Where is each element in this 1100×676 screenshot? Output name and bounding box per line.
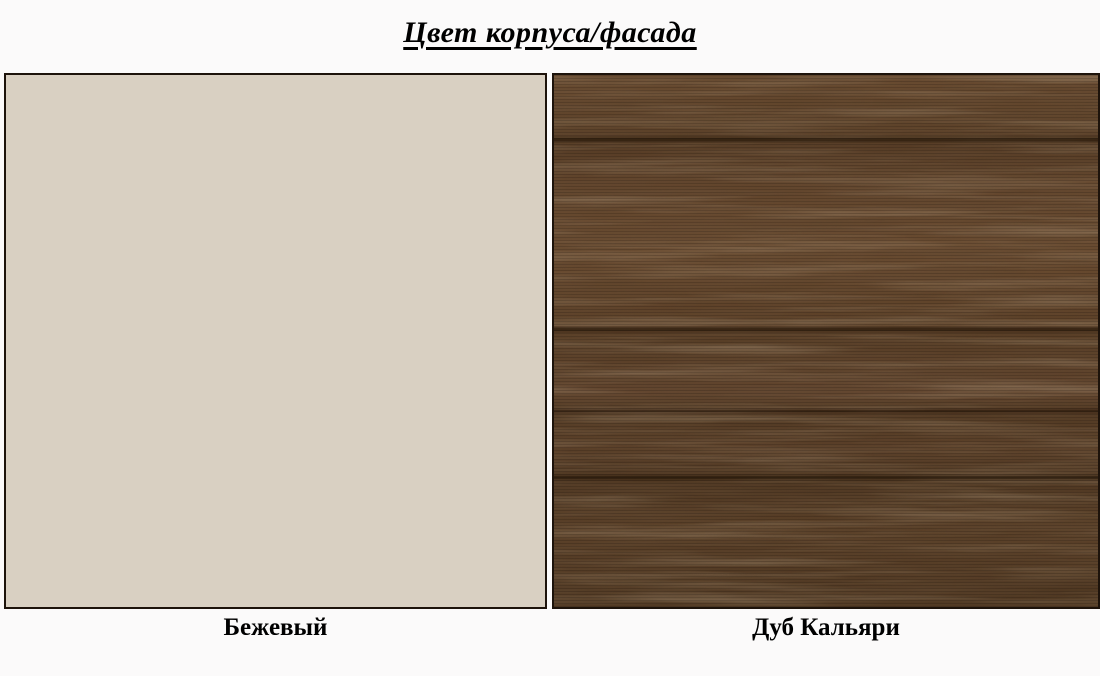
swatch-label-beige: Бежевый [4, 612, 547, 645]
color-options-page: Цвет корпуса/фасада [0, 0, 1100, 676]
oak-cagliari-color-sample [554, 75, 1098, 607]
swatch-option-oak-cagliari[interactable] [552, 73, 1100, 609]
swatch-option-beige[interactable] [4, 73, 547, 609]
swatch-row [4, 73, 1100, 609]
page-title-text: Цвет корпуса/фасада [403, 16, 696, 49]
page-title: Цвет корпуса/фасада [0, 0, 1100, 54]
swatch-label-oak-cagliari: Дуб Кальяри [552, 612, 1100, 645]
swatch-labels-row: Бежевый Дуб Кальяри [4, 612, 1100, 645]
beige-color-sample [6, 75, 545, 607]
wood-texture-image [554, 75, 1098, 607]
